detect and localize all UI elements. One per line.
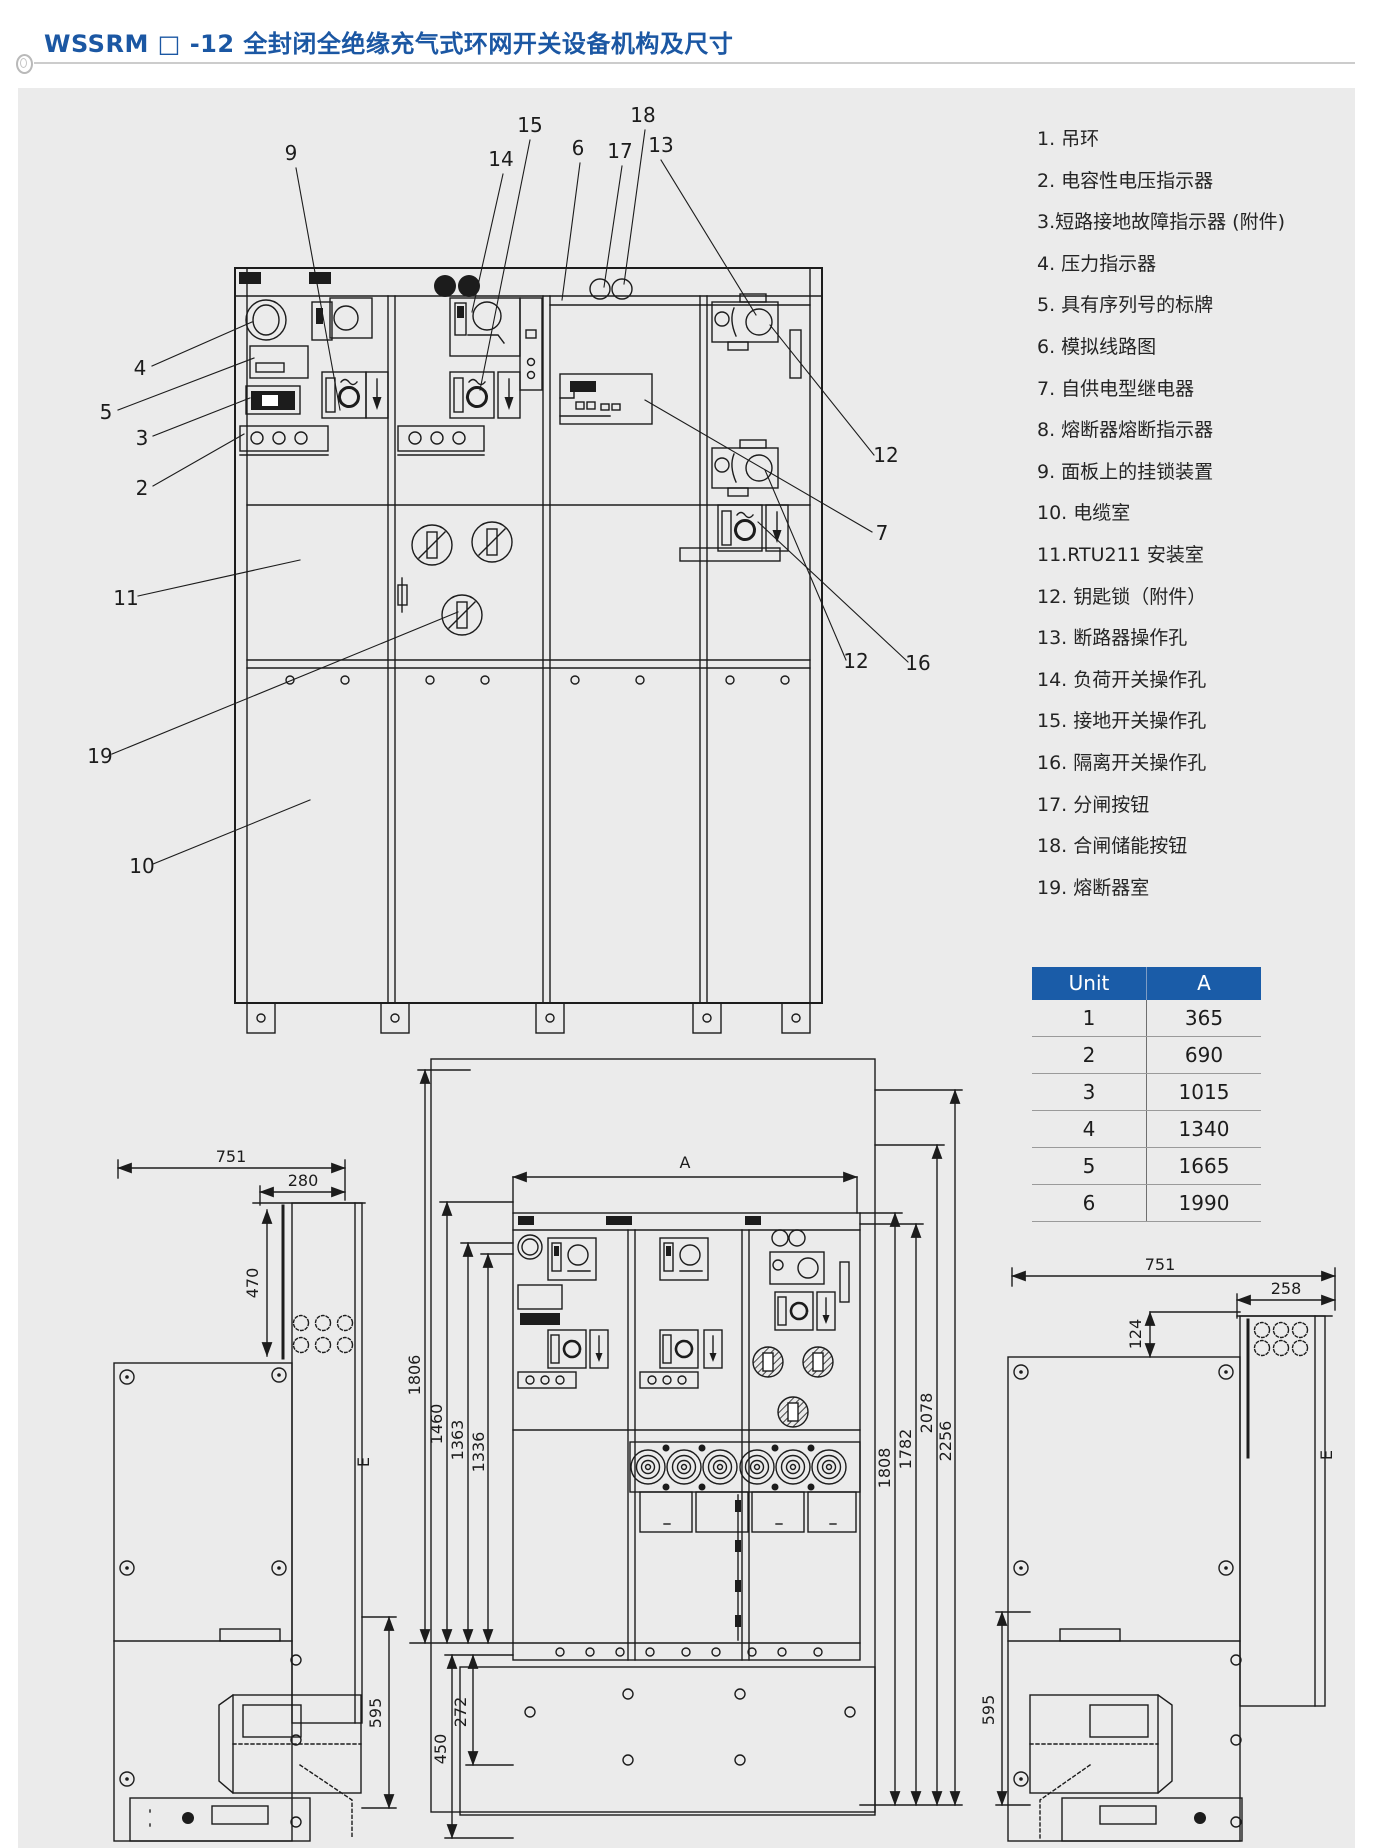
callout-16: 16 [905,651,930,675]
legend-item: 1. 吊环 [1037,119,1285,161]
dim-1808: 1808 [875,1448,894,1489]
legend-item: 4. 压力指示器 [1037,244,1285,286]
dim-2078: 2078 [917,1393,936,1434]
pressure-indicator [246,300,286,340]
legend-item: 18. 合闸储能按钮 [1037,826,1285,868]
dim-258: 258 [1271,1279,1302,1298]
callout-19: 19 [87,744,112,768]
panel-label-e-right: E [1317,1450,1336,1460]
document-page: WSSRM □ -12 全封闭全绝缘充气式环网开关设备机构及尺寸 1. 吊环 2… [0,0,1373,1848]
header-divider [34,62,1355,64]
unit-dimension-table: Unit A 1 365 2 690 3 1015 4 1340 5 1665 … [1032,967,1261,1222]
table-header-a: A [1147,967,1261,1000]
legend-item: 9. 面板上的挂锁装置 [1037,452,1285,494]
legend-item: 5. 具有序列号的标牌 [1037,285,1285,327]
isolator-operation-hole [718,505,762,551]
page-title: WSSRM □ -12 全封闭全绝缘充气式环网开关设备机构及尺寸 [44,24,733,59]
callout-13: 13 [648,133,673,157]
panel-label-e-left: E [354,1457,373,1467]
callout-18: 18 [630,103,655,127]
table-header-row: Unit A [1032,967,1261,1000]
ring-binder-icon [16,54,33,74]
callout-7: 7 [876,521,889,545]
legend-item: 14. 负荷开关操作孔 [1037,660,1285,702]
legend-item: 13. 断路器操作孔 [1037,618,1285,660]
dim-280: 280 [288,1171,319,1190]
callout-17: 17 [607,139,632,163]
callout-3: 3 [136,426,149,450]
legend-item: 8. 熔断器熔断指示器 [1037,410,1285,452]
legend-item: 3.短路接地故障指示器 (附件) [1037,202,1285,244]
legend-item: 15. 接地开关操作孔 [1037,701,1285,743]
fuse [412,525,452,565]
dim-2256: 2256 [936,1421,955,1462]
table-row: 6 1990 [1032,1185,1261,1222]
front-dimension-view: A 1806 1460 1363 1336 [405,1059,962,1838]
callout-12a: 12 [873,443,898,467]
dim-1806: 1806 [405,1355,424,1396]
legend-item: 10. 电缆室 [1037,493,1285,535]
right-side-view: 751 258 124 E [979,1255,1336,1841]
legend-list: 1. 吊环 2. 电容性电压指示器 3.短路接地故障指示器 (附件) 4. 压力… [1037,119,1285,909]
dim-1336: 1336 [469,1432,488,1473]
legend-item: 17. 分闸按钮 [1037,785,1285,827]
callout-5: 5 [100,400,113,424]
earthing-switch-operation-hole [450,372,494,418]
callout-14: 14 [488,147,513,171]
fuse [442,595,482,635]
dim-1782: 1782 [896,1429,915,1470]
serial-nameplate [250,346,308,378]
fuse [753,1347,783,1377]
callout-15: 15 [517,113,542,137]
table-header-unit: Unit [1032,967,1147,1000]
table-row: 1 365 [1032,1000,1261,1037]
dim-272: 272 [451,1697,470,1728]
dim-a: A [680,1153,691,1172]
dim-450: 450 [431,1734,450,1765]
left-side-view: 751 280 470 E [114,1147,396,1841]
callout-11: 11 [113,586,138,610]
callout-9: 9 [285,141,298,165]
table-row: 4 1340 [1032,1111,1261,1148]
legend-item: 19. 熔断器室 [1037,868,1285,910]
switch-operation-hole [322,372,366,418]
callout-10: 10 [129,854,154,878]
callout-2: 2 [136,476,149,500]
legend-item: 6. 模拟线路图 [1037,327,1285,369]
legend-item: 7. 自供电型继电器 [1037,369,1285,411]
legend-item: 16. 隔离开关操作孔 [1037,743,1285,785]
dim-595-right: 595 [979,1695,998,1726]
front-mechanism-diagram [235,268,822,1033]
dim-470: 470 [243,1268,262,1299]
dim-751-left: 751 [216,1147,247,1166]
callout-leaders [112,130,908,864]
dim-595-left: 595 [366,1698,385,1729]
callout-4: 4 [134,356,147,380]
callout-6: 6 [572,136,585,160]
callout-numbers: 9 15 14 6 17 18 13 4 5 3 2 11 19 10 12 7… [87,103,930,878]
dim-751-right: 751 [1145,1255,1176,1274]
dim-1460: 1460 [427,1404,446,1445]
fuse [472,522,512,562]
table-row: 3 1015 [1032,1074,1261,1111]
fuse [778,1397,808,1427]
dim-1363: 1363 [448,1420,467,1461]
callout-12b: 12 [843,649,868,673]
legend-item: 12. 钥匙锁（附件） [1037,577,1285,619]
legend-item: 2. 电容性电压指示器 [1037,161,1285,203]
voltage-indicator [240,426,328,451]
dim-124: 124 [1126,1319,1145,1350]
key-lock-lower [712,440,778,496]
fuse [803,1347,833,1377]
table-row: 2 690 [1032,1037,1261,1074]
table-row: 5 1665 [1032,1148,1261,1185]
legend-item: 11.RTU211 安装室 [1037,535,1285,577]
key-lock-upper [712,294,778,350]
